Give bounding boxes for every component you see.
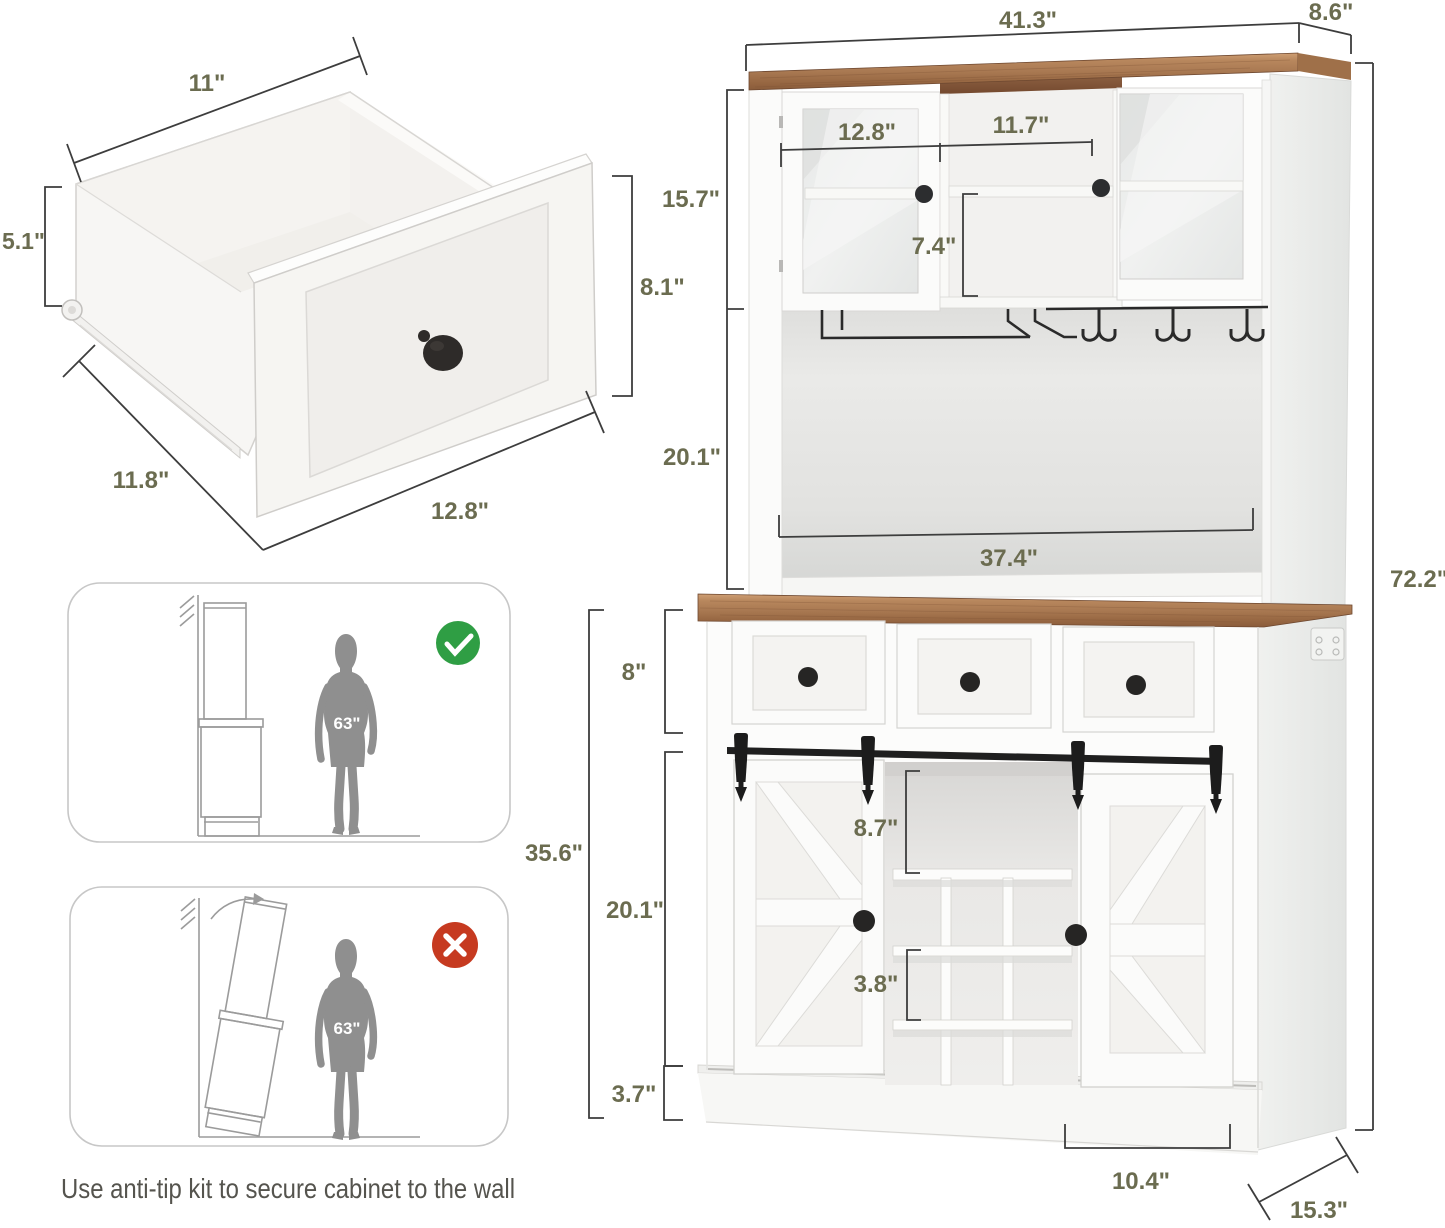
svg-text:8.1": 8.1" [640,274,685,301]
svg-text:8": 8" [622,659,647,686]
svg-text:63": 63" [334,714,361,733]
svg-text:3.7": 3.7" [612,1081,657,1108]
svg-text:11.8": 11.8" [113,467,170,494]
svg-text:3.8": 3.8" [854,971,899,998]
svg-text:12.8": 12.8" [431,498,489,525]
svg-text:35.6": 35.6" [525,840,583,867]
svg-text:11": 11" [189,70,226,97]
svg-text:Use anti-tip kit to secure cab: Use anti-tip kit to secure cabinet to th… [61,1173,515,1204]
svg-text:20.1": 20.1" [606,897,664,924]
svg-text:12.8": 12.8" [838,119,896,146]
svg-text:10.4": 10.4" [1112,1168,1170,1195]
svg-text:11.7": 11.7" [993,112,1050,139]
svg-text:8.6": 8.6" [1309,0,1354,26]
svg-text:5.1": 5.1" [2,228,45,254]
svg-text:41.3": 41.3" [999,7,1057,34]
svg-text:72.2": 72.2" [1390,566,1445,593]
svg-text:8.7": 8.7" [854,815,899,842]
svg-text:15.7": 15.7" [662,186,720,213]
svg-text:15.3": 15.3" [1290,1197,1348,1223]
svg-text:20.1": 20.1" [663,444,721,471]
svg-text:7.4": 7.4" [912,233,957,260]
svg-text:37.4": 37.4" [980,545,1038,572]
svg-text:63": 63" [334,1019,361,1038]
